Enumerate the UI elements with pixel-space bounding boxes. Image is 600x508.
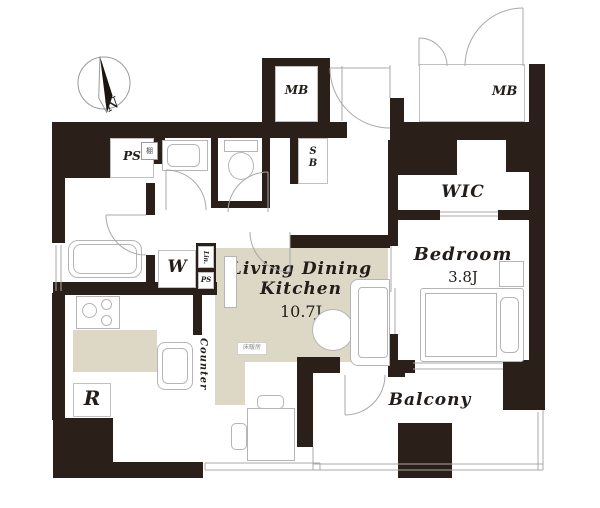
stove-burner — [101, 315, 112, 326]
dining-chair — [257, 395, 284, 409]
wall-segment — [146, 183, 155, 215]
mb-door-arc — [419, 38, 447, 66]
toilet-tank — [224, 140, 258, 152]
wall-segment — [318, 58, 330, 122]
mb-right-label: MB — [492, 85, 517, 100]
wall-segment — [262, 138, 270, 208]
wall-segment — [211, 138, 218, 208]
wall-segment — [110, 122, 270, 138]
bed-mattress — [425, 293, 497, 357]
ldk-label-line1: Living Dining — [213, 260, 389, 280]
wall-segment — [290, 235, 390, 248]
wall-segment — [52, 122, 110, 178]
entrance-door-arc — [330, 68, 390, 128]
washbasin-bowl — [167, 144, 200, 167]
kitchen-sink-inner — [162, 348, 188, 384]
sb-label: S B — [298, 146, 328, 169]
wall-segment — [390, 98, 404, 124]
washroom-door-arc — [166, 170, 206, 210]
wall-segment — [503, 360, 529, 410]
wall-segment — [388, 360, 405, 377]
wall-segment — [506, 140, 529, 172]
sb-label-s: S — [298, 146, 328, 158]
bed-pillow — [500, 297, 519, 353]
wall-segment — [52, 293, 65, 420]
wall-segment — [52, 178, 65, 243]
counter-label: Counter — [197, 338, 209, 410]
wall-segment — [498, 210, 529, 220]
balcony-label: Balcony — [365, 391, 495, 411]
shelf-label: 棚 — [141, 147, 158, 155]
wall-segment — [290, 138, 298, 184]
wall-segment — [53, 462, 203, 478]
wall-segment — [193, 295, 202, 335]
dining-chair — [231, 423, 247, 450]
kitchen-counter-floor — [73, 330, 157, 372]
mb-door-arc — [465, 8, 523, 66]
wall-segment — [262, 58, 275, 122]
compass-icon: N — [78, 55, 130, 116]
nightstand — [499, 261, 524, 287]
wall-segment — [388, 140, 398, 246]
sb-label-b: B — [298, 158, 328, 170]
compass-n-label: N — [101, 93, 123, 116]
wall-segment — [255, 122, 347, 138]
wic-label: WIC — [398, 183, 528, 203]
round-table — [312, 309, 354, 351]
bathtub-inner — [73, 244, 137, 274]
tv-board — [224, 256, 237, 308]
linen-label: Lin. — [201, 248, 208, 266]
wall-segment — [53, 418, 113, 464]
wall-segment — [146, 255, 155, 293]
floorplan: PS 棚 MB MB S B W Lin. PS R 床暖房 WIC Bedro… — [0, 0, 600, 508]
wall-segment — [398, 210, 440, 220]
ldk-floor-strip — [215, 362, 245, 405]
fridge-label: R — [73, 387, 111, 410]
wall-segment — [393, 140, 457, 175]
mb-left-label: MB — [275, 84, 318, 98]
balcony-pillar — [398, 423, 452, 478]
floor-heating-label: 床暖房 — [237, 345, 267, 352]
stove-burner — [82, 303, 97, 318]
wall-segment — [529, 64, 545, 410]
wall-segment — [297, 357, 313, 447]
stove-burner — [101, 299, 112, 310]
dining-table — [247, 408, 295, 461]
sofa-cushion — [358, 287, 388, 358]
wall-segment — [390, 122, 536, 140]
ps-small-label: PS — [198, 276, 214, 284]
washer-label: W — [158, 258, 196, 278]
toilet-bowl — [228, 152, 254, 180]
